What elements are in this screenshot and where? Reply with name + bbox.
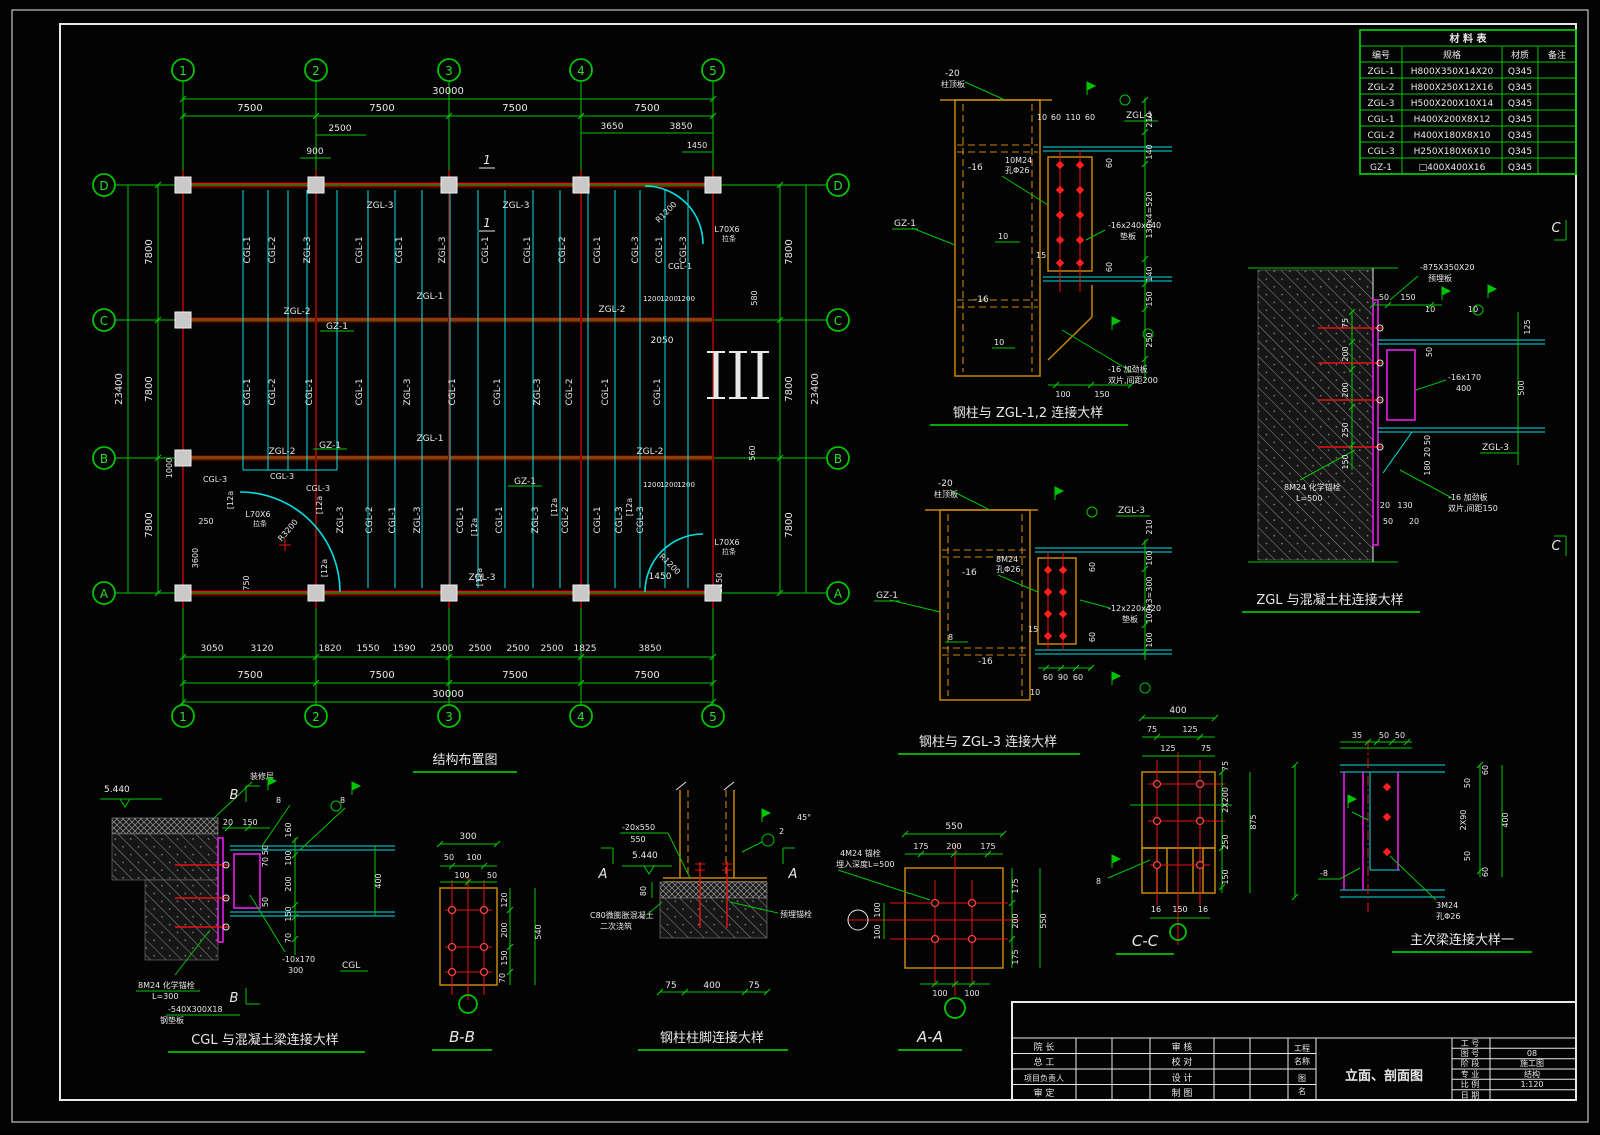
dim-label: 150 [1094, 390, 1109, 399]
dim-label: 540 [534, 924, 543, 939]
dim-label: 200 [284, 876, 293, 891]
detail-title: CGL 与混凝土梁连接大样 [191, 1032, 339, 1048]
beam-label: ZGL-3 [367, 201, 394, 211]
channel-label: [12a [226, 491, 235, 509]
dim-label: 60 [1481, 867, 1490, 877]
dim-label: 50 [1379, 731, 1389, 740]
field-value: 结构 [1524, 1069, 1540, 1079]
plan-title: 结构布置图 [432, 753, 497, 768]
dim-label: 23400 [810, 373, 821, 405]
dim-label: 3600 [191, 548, 200, 568]
dim-label: 560 [748, 445, 757, 460]
beam-label: CGL-1 [395, 236, 405, 263]
section-cut-label: A [788, 867, 798, 882]
dim-label: 100 [284, 850, 293, 865]
table-row: ZGL-1 H800X350X14X20 Q345 ZGL-2 H800X250… [1367, 67, 1532, 173]
dim-label: 160 [284, 822, 293, 837]
cell: CGL-1 [1367, 115, 1394, 125]
cad-drawing-sheet: 材 料 表 编号 规格 材质 备注 ZGL-1 H800X350X14X20 Q… [0, 0, 1600, 1131]
dim-label: 175 [1011, 949, 1020, 964]
weld-size-label: 10 [1030, 688, 1040, 697]
angle-sub-label: 拉条 [253, 519, 267, 528]
section-cut-label: 1 [483, 216, 491, 230]
role-label: 院 长 [1034, 1041, 1055, 1053]
grid-bubble-label: 5 [709, 710, 717, 724]
dim-label: 50 [1423, 435, 1432, 445]
project-name-label: 工程 [1294, 1044, 1310, 1053]
dim-label: 23400 [114, 373, 125, 405]
drawing-name-label: 图 [1298, 1074, 1306, 1083]
dim-label: 2500 [329, 124, 352, 134]
channel-label: [12a [625, 498, 634, 516]
dim-label: 100 [873, 902, 882, 917]
cell: H800X350X14X20 [1411, 67, 1494, 77]
dim-label: 1820 [319, 644, 342, 654]
dim-label: 150 [242, 818, 257, 827]
detail-col-zgl12: -20 柱顶板 GZ-1 ZGL-1 -16 -16 10M24 孔Φ26 10… [892, 69, 1172, 425]
dim-label: 7500 [634, 670, 659, 681]
dim-label: 1200 [643, 481, 661, 489]
beam-label: ZGL-3 [438, 237, 448, 264]
beam-label: ZGL-3 [403, 379, 413, 406]
dim-label: 1550 [357, 644, 380, 654]
weld-size-label: 10 [994, 338, 1004, 347]
material-table: 材 料 表 编号 规格 材质 备注 ZGL-1 H800X350X14X20 Q… [1360, 30, 1576, 174]
detail-bb: 300 50 100 100 50 120 200 150 70 540 B-B [432, 832, 543, 1050]
elevation-label: 5.440 [632, 851, 658, 861]
material-table-title: 材 料 表 [1450, 32, 1488, 45]
role-label: 制 图 [1172, 1087, 1193, 1099]
detail-aa: 550 175 200 175 100 100 175 200 175 550 … [836, 822, 1048, 1050]
dim-label: 10 [1037, 113, 1047, 122]
dim-label: 70 [498, 973, 507, 983]
dim-label: 50 [444, 853, 454, 862]
dim-label: 100 [873, 924, 882, 939]
field-value: 08 [1527, 1049, 1537, 1058]
bolt-label: 8M24 [996, 555, 1018, 564]
dim-label: 120 [500, 892, 509, 907]
detail-title: 钢柱与 ZGL-3 连接大样 [919, 734, 1057, 750]
grid-bubble-label: 3 [445, 64, 453, 78]
weld-angle-label: 45° [797, 813, 811, 822]
grid-bubble-label: 4 [577, 64, 585, 78]
stiffener-label: -16 加劲板 [1448, 492, 1488, 502]
bolt-label: 10M24 [1005, 156, 1032, 165]
dim-label: 30000 [432, 86, 464, 97]
weld-size-label: 10 [1425, 305, 1435, 314]
dim-label: 250 [1221, 834, 1230, 849]
dim-label: 60 [1088, 632, 1097, 642]
dim-label: 400 [703, 981, 720, 991]
dim-label: 50 [1425, 347, 1434, 357]
cell: □400X400X16 [1419, 163, 1486, 173]
grout-label: C80微膨胀混凝土 [590, 910, 654, 920]
beam-label: CGL-3 [636, 506, 646, 533]
section-cut-label: 1 [483, 153, 491, 167]
member-label: CGL [342, 961, 360, 971]
dim-label: 75 [665, 981, 676, 991]
cell: CGL-3 [1367, 147, 1394, 157]
member-label: ZGL-3 [1482, 443, 1509, 453]
cell: GZ-1 [1370, 163, 1392, 173]
dim-label: 1825 [574, 644, 597, 654]
dim-label: 150 [284, 906, 293, 921]
col-header: 材质 [1511, 49, 1529, 61]
grid-bubble-label: C [100, 314, 108, 328]
dim-label: 200 [1011, 913, 1020, 928]
detail-title: ZGL 与混凝土柱连接大样 [1256, 592, 1403, 608]
dim-label: 400 [374, 873, 383, 888]
anchor-label2: L=500 [1296, 494, 1322, 503]
dim-label: 200 [1341, 382, 1350, 397]
angle-sub-label: 拉条 [722, 547, 736, 556]
plan-callouts: [12a [12a [12a [12a [12a [12a [12a L70X6… [226, 153, 740, 586]
detail-title: B-B [449, 1028, 475, 1046]
hole-label: 孔Φ26 [1005, 166, 1029, 175]
beam-label: CGL-3 [203, 475, 227, 484]
cell: H500X200X10X14 [1411, 99, 1494, 109]
plate-label: -20 [945, 69, 960, 79]
dim-label: 580 [750, 290, 759, 305]
beam-label: ZGL-2 [599, 305, 626, 315]
dim-label: 1200 [677, 295, 695, 303]
dim-label: 300 [459, 832, 476, 842]
beam-label: CGL-3 [615, 506, 625, 533]
beam-label: CGL-3 [270, 472, 294, 481]
grid-bubble-label: A [100, 587, 109, 601]
cell: Q345 [1508, 131, 1532, 141]
dim-label: 50 [1383, 517, 1393, 526]
detail-title: 主次梁连接大样一 [1410, 932, 1514, 948]
drawing-name-label: 名 [1298, 1086, 1306, 1096]
plate-label: -20 [938, 479, 953, 489]
drawing-canvas: 材 料 表 编号 规格 材质 备注 ZGL-1 H800X350X14X20 Q… [0, 0, 1600, 1131]
plate-label: -16x170 [1448, 373, 1481, 382]
weld-size-label: 10 [1468, 305, 1478, 314]
col-header: 编号 [1372, 49, 1390, 61]
dim-label: 875 [1249, 814, 1258, 829]
channel-label: [12a [320, 559, 329, 577]
grid-bubble-label: 1 [179, 710, 187, 724]
beam-label: CGL-1 [448, 378, 458, 405]
dim-label: 7500 [502, 670, 527, 681]
beam-label: CGL-1 [493, 378, 503, 405]
grid-bubble-label: 3 [445, 710, 453, 724]
dim-label: 80 [639, 886, 648, 896]
role-label: 审 定 [1034, 1087, 1055, 1099]
dim-label: 2X90 [1459, 810, 1468, 831]
weld-size-label: 15 [1028, 625, 1038, 634]
beam-label: CGL-1 [653, 378, 663, 405]
dim-label: 60 [1043, 673, 1053, 682]
dim-label: 2X200 [1221, 787, 1230, 813]
weld-size-label: 2 [779, 827, 784, 836]
section-cut-label: C [1551, 221, 1561, 236]
dim-label: 35 [1352, 731, 1362, 740]
weld-size-label: 15 [1036, 251, 1046, 260]
grid-bubble-label: B [100, 452, 108, 466]
beam-label: CGL-1 [593, 236, 603, 263]
cell: H400X180X8X10 [1414, 131, 1491, 141]
dim-label: 400 [1169, 706, 1186, 716]
dim-label: 200 [1341, 346, 1350, 361]
grid-bub-label: 5 [709, 64, 717, 78]
plate-label2: 柱顶板 [941, 79, 965, 89]
beam-label: CGL-2 [268, 236, 278, 263]
dim-label: 100x3=300 [1145, 576, 1154, 623]
grid-bubble-label: D [99, 179, 108, 193]
beam-label: ZGL-3 [413, 507, 423, 534]
pad-label2: 垫板 [1120, 231, 1136, 241]
detail-column-base: 5.440 -20x550 550 A A 2 45° 80 C80微膨胀混凝土… [590, 782, 812, 1050]
dim-label: 2500 [469, 644, 492, 654]
channel-label: [12a [550, 498, 559, 516]
dim-label: 210 [1145, 112, 1154, 127]
dim-label: 2500 [431, 644, 454, 654]
grid-bubble-label: D [833, 179, 842, 193]
project-name-label: 名称 [1294, 1056, 1310, 1066]
beam-label: CGL-3 [679, 236, 689, 263]
beam-label: CGL-1 [481, 236, 491, 263]
dim-label: 50 [1379, 293, 1389, 302]
weld-size-label: 8 [340, 796, 345, 805]
dim-label: 250 [1145, 332, 1154, 347]
field-label: 阶 段 [1461, 1058, 1480, 1068]
beam-label: CGL-1 [388, 506, 398, 533]
plate-thickness-label: -8 [1320, 869, 1328, 878]
dim-label: 7800 [144, 239, 155, 264]
beam-label: CGL-2 [558, 236, 568, 263]
dim-label: 7500 [237, 670, 262, 681]
dim-label: 60 [1105, 262, 1114, 272]
anchor-label: 4M24 锚栓 [840, 848, 881, 858]
weld-size-label: 8 [276, 796, 281, 805]
detail-title: 钢柱柱脚连接大样 [660, 1030, 764, 1046]
member-label: GZ-1 [894, 219, 916, 229]
anchor-label: 8M24 化学锚栓 [1284, 482, 1341, 492]
dim-label: 50 [1395, 731, 1405, 740]
grid-bubble-label: 2 [312, 64, 320, 78]
detail-zgl-concrete-col: -875X350X20 预埋板 50 150 75 200 200 250 15… [1242, 220, 1566, 612]
pad-label: -540X300X18 [168, 1005, 223, 1014]
dim-label: 7500 [369, 670, 394, 681]
dim-label: 250 [198, 517, 213, 526]
sheet-frame [12, 10, 1588, 1122]
field-label: 比 例 [1461, 1079, 1480, 1089]
section-cut-label: B [230, 788, 239, 803]
plan-dims-bottom: 3050 3120 1820 1550 1590 2500 2500 2500 … [180, 644, 716, 705]
thickness-label: -16 [978, 657, 993, 667]
beam-label: CGL-1 [456, 506, 466, 533]
dim-label: 150 [1145, 291, 1154, 306]
dim-label: 175 [1011, 878, 1020, 893]
structure-plan: 1 2 3 4 5 1 2 3 4 5 D C B A D C B A 3000… [93, 59, 849, 772]
detail-title: A-A [916, 1028, 943, 1046]
embed-plate-label: -875X350X20 [1420, 263, 1475, 272]
dim-label: 7800 [784, 239, 795, 264]
dim-label: 180 [1423, 460, 1432, 475]
cell: H250X180X6X10 [1414, 147, 1491, 157]
pad-label2: 钢垫板 [160, 1015, 184, 1025]
dim-label: 400 [1501, 812, 1510, 827]
dim-label: 30000 [432, 689, 464, 700]
dim-label: 7500 [237, 103, 262, 114]
dim-label: 750 [242, 575, 251, 590]
role-label: 校 对 [1172, 1056, 1193, 1068]
dim-label: 7500 [634, 103, 659, 114]
dim-label: 7800 [144, 376, 155, 401]
beam-label: CGL-1 [668, 262, 692, 271]
dim-label: 90 [1058, 673, 1068, 682]
beam-label: CGL-1 [601, 378, 611, 405]
beam-label: CGL-2 [561, 506, 571, 533]
hole-label: 孔Φ26 [1436, 912, 1460, 921]
dim-label: 210 [1145, 519, 1154, 534]
cell: ZGL-3 [1368, 99, 1395, 109]
dim-label: 20 [1423, 447, 1432, 457]
role-label: 项目负责人 [1024, 1073, 1064, 1083]
dim-label: 3650 [601, 122, 624, 132]
dim-label: 16 [1151, 905, 1161, 914]
dim-label: 7800 [784, 512, 795, 537]
channel-label: [12a [315, 496, 324, 514]
beam-label: ZGL-3 [303, 237, 313, 264]
section-cut-label: A [598, 867, 608, 882]
dim-label: 125 [1160, 744, 1175, 753]
cell: ZGL-1 [1368, 67, 1395, 77]
dim-label: 150 [1221, 869, 1230, 884]
dim-label: 100 [1055, 390, 1070, 399]
dim-label: 3850 [639, 644, 662, 654]
beam-label: ZGL-3 [503, 201, 530, 211]
dim-label: 70 [284, 933, 293, 943]
dim-label: 1200 [660, 295, 678, 303]
dim-label: 550 [1039, 913, 1048, 928]
dim-label: 100 [466, 853, 481, 862]
field-value: 1:120 [1520, 1080, 1543, 1089]
cell: H800X250X12X16 [1411, 83, 1494, 93]
detail-title: 钢柱与 ZGL-1,2 连接大样 [953, 405, 1104, 421]
cell: Q345 [1508, 99, 1532, 109]
pad-label2: 垫板 [1122, 614, 1138, 624]
dim-label: 140 [1145, 144, 1154, 159]
thickness-label: -16 [968, 163, 983, 173]
dim-label: 130x4=520 [1145, 191, 1154, 238]
radius-label: R1200 [654, 200, 679, 225]
stiffener-label: -16 加劲板 [1108, 364, 1148, 374]
channel-label: [12a [470, 518, 479, 536]
dim-label: 75 [1147, 725, 1157, 734]
dim-label: 20 [1380, 501, 1390, 510]
col-header: 备注 [1548, 49, 1566, 61]
plate-label2: 550 [630, 835, 645, 844]
dim-label: 1000 [165, 458, 174, 478]
grid-bubble-label: 1 [179, 64, 187, 78]
beam-label: CGL-1 [593, 506, 603, 533]
dim-label: 2500 [507, 644, 530, 654]
beam-label: CGL-2 [365, 506, 375, 533]
field-value: 施工图 [1520, 1058, 1544, 1068]
plate-label: -20x550 [622, 823, 655, 832]
stiffener-label2: 双片,间距200 [1108, 375, 1158, 385]
dim-label: 50 [487, 871, 497, 880]
beam-label: CGL-1 [243, 378, 253, 405]
dim-label: 3850 [670, 122, 693, 132]
beam-label: ZGL-3 [531, 507, 541, 534]
i-beam-symbols [707, 352, 769, 398]
beam-label: CGL-2 [565, 378, 575, 405]
plate-label2: 400 [1456, 384, 1471, 393]
dim-label: 200 [500, 922, 509, 937]
grid-bubble-label: C [834, 314, 842, 328]
angle-sub-label: 拉条 [722, 234, 736, 243]
dim-label: 175 [980, 842, 995, 851]
dim-label: 7800 [784, 376, 795, 401]
beam-label: CGL-1 [305, 378, 315, 405]
field-label: 图 号 [1461, 1049, 1480, 1058]
dim-label: 110 [1065, 113, 1080, 122]
dim-label: 200 [946, 842, 961, 851]
dim-label: 150 [1341, 454, 1350, 469]
beam-label: CGL-3 [631, 236, 641, 263]
beam-label: CGL-1 [495, 506, 505, 533]
section-cut-label: B [230, 991, 239, 1006]
anchor-label: 预埋锚栓 [780, 909, 812, 919]
beam-label: ZGL-2 [637, 447, 664, 457]
dim-label: 100 [454, 871, 469, 880]
dim-label: 75 [1341, 318, 1350, 328]
dim-label: 60 [1088, 562, 1097, 572]
dim-label: 7500 [369, 103, 394, 114]
role-label: 设 计 [1172, 1072, 1193, 1084]
dim-label: 60 [1481, 765, 1490, 775]
beam-label: CGL-1 [523, 236, 533, 263]
beam-label: ZGL-1 [417, 434, 444, 444]
field-label: 专 业 [1461, 1069, 1480, 1079]
bolt-label: 3M24 [1436, 901, 1458, 910]
dim-label: 1450 [687, 141, 707, 150]
grid-bubble-label: 4 [577, 710, 585, 724]
section-cut-label: C [1551, 539, 1561, 554]
beam-label: CGL-1 [243, 236, 253, 263]
angle-label: L70X6 [714, 225, 739, 234]
radius-label: R3200 [276, 518, 300, 544]
beam-label: CGL-1 [355, 236, 365, 263]
dim-label: 1200 [677, 481, 695, 489]
beam-label: ZGL-2 [269, 447, 296, 457]
beam-label: ZGL-3 [336, 507, 346, 534]
dim-label: 16 [1198, 905, 1208, 914]
dim-label: 1200 [660, 481, 678, 489]
dim-label: 1590 [393, 644, 416, 654]
beam-label: ZGL-1 [417, 292, 444, 302]
detail-main-secondary-beam: 35 50 50 60 50 2X90 50 60 400 -8 3M24 孔Φ… [1292, 731, 1532, 952]
field-label: 日 期 [1461, 1091, 1480, 1100]
dim-label: 150 [1400, 293, 1415, 302]
dim-label: 3120 [251, 644, 274, 654]
cell: CGL-2 [1367, 131, 1394, 141]
cell: Q345 [1508, 67, 1532, 77]
dim-label: 1450 [649, 572, 672, 582]
embed-plate-label2: 预埋板 [1428, 273, 1452, 283]
beam-label: CGL-2 [268, 378, 278, 405]
dim-label: 60 [1051, 113, 1061, 122]
detail-title: C-C [1132, 932, 1159, 950]
dim-label: 1200 [643, 295, 661, 303]
beam-label: CGL-1 [655, 236, 665, 263]
beam-label: ZGL-3 [533, 379, 543, 406]
dim-label: 20 [223, 818, 233, 827]
